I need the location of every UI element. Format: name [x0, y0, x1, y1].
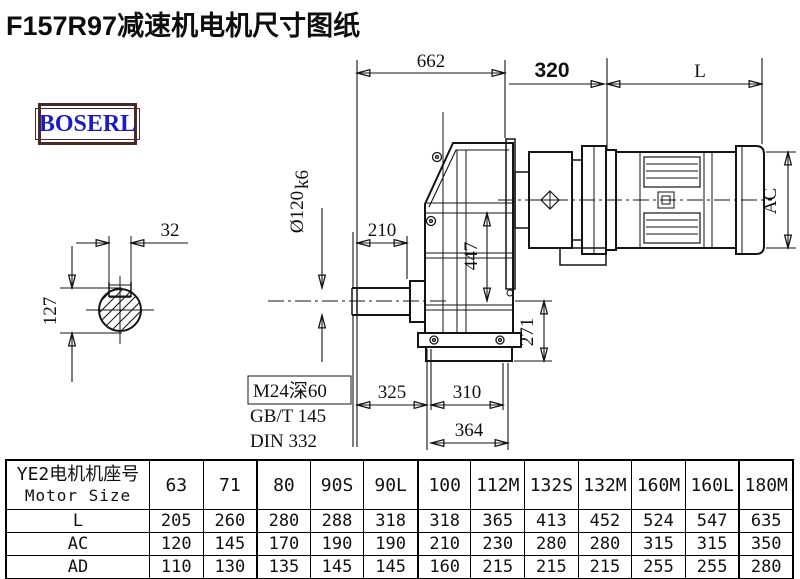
table-cell: 110 — [149, 555, 203, 578]
table-cell: 280 — [738, 555, 792, 578]
table-cell: 130 — [203, 555, 257, 578]
table-cell: 635 — [738, 509, 792, 532]
table-cell: 215 — [470, 555, 524, 578]
col-63: 63 — [149, 461, 203, 509]
dim-662: 662 — [417, 51, 446, 72]
dim-L: L — [694, 61, 706, 82]
dim-364: 364 — [455, 420, 484, 441]
label-tap-hole: M24深60 — [253, 380, 327, 402]
row-label-AD: AD — [7, 555, 149, 578]
col-71: 71 — [203, 461, 257, 509]
table-cell: 120 — [149, 532, 203, 555]
dim-447: 447 — [461, 242, 482, 271]
technical-drawing: 662 320 L — [0, 40, 800, 500]
table-cell: 210 — [417, 532, 471, 555]
table-cell: 524 — [631, 509, 685, 532]
page-title: F157R97减速机电机尺寸图纸 — [6, 4, 360, 43]
row-label-AC: AC — [7, 532, 149, 555]
dim-127: 127 — [40, 297, 61, 326]
table-cell: 230 — [470, 532, 524, 555]
dim-shaft-diameter: Ø120 — [287, 191, 308, 233]
shaft-end-view: 32 127 — [40, 220, 188, 382]
table-cell: 280 — [578, 532, 632, 555]
table-header-cn: YE2电机机座号 — [17, 464, 140, 485]
dim-32: 32 — [161, 220, 180, 241]
table-cell: 315 — [631, 532, 685, 555]
col-160M: 160M — [631, 461, 685, 509]
dim-210: 210 — [368, 220, 397, 241]
dim-shaft-tolerance: k6 — [292, 170, 313, 189]
table-cell: 413 — [524, 509, 578, 532]
table-cell: 255 — [685, 555, 739, 578]
table-cell: 190 — [363, 532, 417, 555]
table-cell: 318 — [417, 509, 471, 532]
table-cell: 255 — [631, 555, 685, 578]
label-std-din: DIN 332 — [250, 431, 317, 452]
table-cell: 315 — [685, 532, 739, 555]
table-cell: 145 — [203, 532, 257, 555]
table-header-motor-size: YE2电机机座号 Motor Size — [7, 461, 149, 509]
table-cell: 145 — [363, 555, 417, 578]
col-132S: 132S — [524, 461, 578, 509]
top-dimensions: 662 320 L — [357, 51, 762, 232]
table-cell: 280 — [256, 509, 310, 532]
table-cell: 190 — [310, 532, 364, 555]
table-cell: 547 — [685, 509, 739, 532]
table-cell: 260 — [203, 509, 257, 532]
col-100: 100 — [417, 461, 471, 509]
dim-325: 325 — [378, 382, 407, 403]
table-cell: 215 — [524, 555, 578, 578]
col-80: 80 — [256, 461, 310, 509]
dim-AC: AC — [760, 188, 781, 214]
motor-size-table: YE2电机机座号 Motor Size 63 71 80 90S 90L 100… — [5, 459, 794, 579]
table-cell: 205 — [149, 509, 203, 532]
col-90L: 90L — [363, 461, 417, 509]
table-header-en: Motor Size — [25, 485, 131, 506]
motor-side-view: AC — [498, 139, 796, 296]
table-cell: 318 — [363, 509, 417, 532]
table-cell: 170 — [256, 532, 310, 555]
col-112M: 112M — [470, 461, 524, 509]
drawing-page: F157R97减速机电机尺寸图纸 BOSERL 662 320 L — [0, 0, 800, 579]
table-cell: 452 — [578, 509, 632, 532]
table-cell: 135 — [256, 555, 310, 578]
table-cell: 145 — [310, 555, 364, 578]
row-label-L: L — [7, 509, 149, 532]
table-cell: 160 — [417, 555, 471, 578]
table-cell: 288 — [310, 509, 364, 532]
col-90S: 90S — [310, 461, 364, 509]
table-cell: 350 — [738, 532, 792, 555]
table-cell: 280 — [524, 532, 578, 555]
dim-320: 320 — [534, 59, 569, 82]
table-cell: 365 — [470, 509, 524, 532]
label-std-gb: GB/T 145 — [250, 406, 326, 427]
col-180M: 180M — [738, 461, 792, 509]
col-160L: 160L — [685, 461, 739, 509]
col-132M: 132M — [578, 461, 632, 509]
dim-310: 310 — [453, 382, 482, 403]
table-cell: 215 — [578, 555, 632, 578]
output-shaft — [268, 281, 448, 322]
dim-271: 271 — [517, 318, 538, 347]
